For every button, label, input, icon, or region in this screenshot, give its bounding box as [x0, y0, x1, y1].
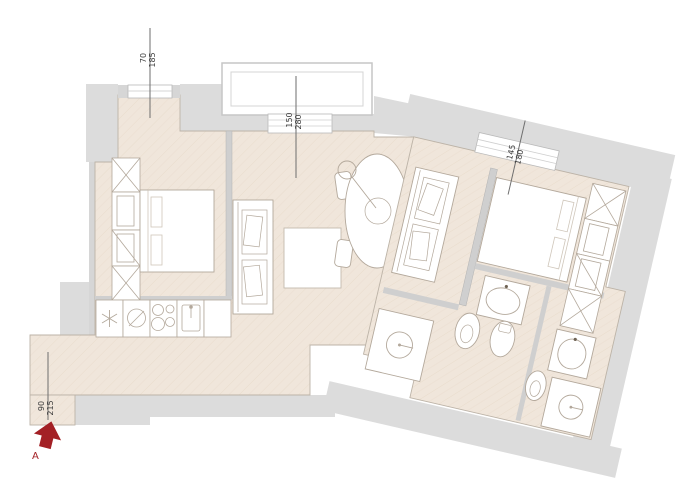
sofa-pillow	[410, 231, 430, 261]
sink-tap-dot	[190, 306, 193, 309]
dimension-label: 185	[148, 52, 157, 67]
wall	[172, 85, 180, 98]
floor-plan: 145 180 70 185 150 280 90 215 A	[0, 0, 700, 500]
shower-icon	[541, 377, 601, 437]
exterior-band	[75, 395, 150, 425]
wall	[118, 85, 128, 98]
exterior-band	[86, 84, 118, 162]
exterior-band	[222, 114, 268, 133]
dimension-label: 215	[46, 400, 55, 415]
sofa-pillow	[243, 265, 262, 297]
sofa-icon	[233, 200, 273, 314]
wardrobe-detail	[117, 196, 134, 226]
counter	[204, 300, 231, 337]
balcony	[222, 63, 372, 115]
dimension-label: 280	[294, 114, 303, 129]
sofa-pillow	[243, 215, 263, 247]
bed-icon	[140, 190, 214, 272]
wall-bedroom-living	[226, 131, 232, 299]
dimension-label: 70	[139, 53, 148, 63]
dimension-label: 150	[285, 112, 294, 127]
exterior-band	[150, 395, 335, 417]
exterior-wall	[89, 162, 95, 335]
coffee-table-icon	[284, 228, 341, 288]
balcony-rail	[222, 63, 372, 115]
left-wing	[30, 63, 422, 425]
wardrobe-icon	[112, 158, 140, 300]
washbasin-icon	[548, 329, 596, 379]
dimension-label: 90	[37, 401, 46, 411]
kitchen-units	[96, 300, 231, 337]
entrance-label: A	[32, 451, 39, 462]
floor-plan-page: 145 180 70 185 150 280 90 215 A	[0, 0, 700, 500]
pillow	[151, 197, 162, 227]
exterior-band	[332, 114, 374, 133]
pillow	[151, 235, 162, 265]
